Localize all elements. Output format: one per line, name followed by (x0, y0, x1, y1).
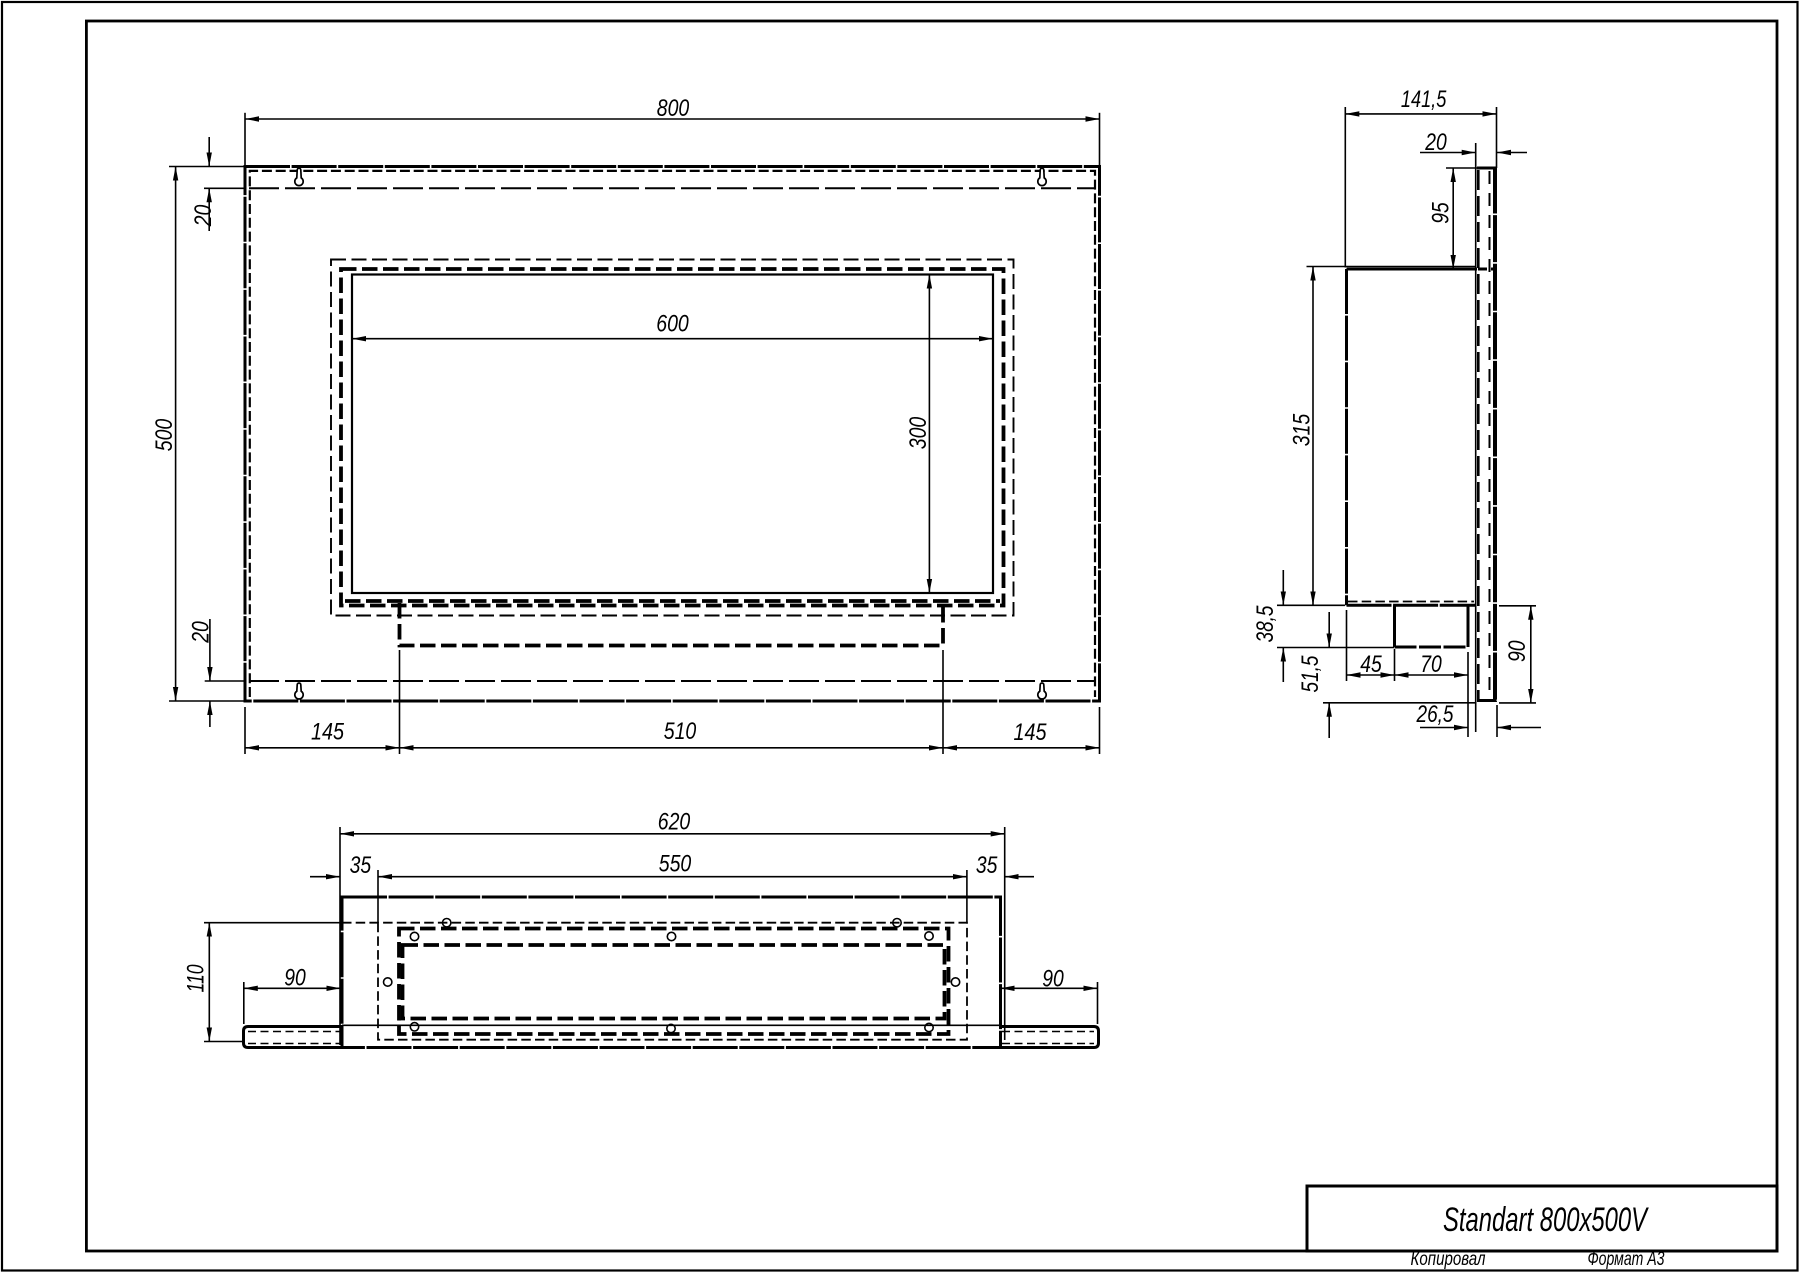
svg-text:45: 45 (1360, 651, 1382, 678)
svg-text:Формат А3: Формат А3 (1588, 1249, 1665, 1270)
svg-text:90: 90 (1504, 640, 1531, 662)
svg-text:26,5: 26,5 (1416, 701, 1454, 728)
svg-text:141,5: 141,5 (1401, 86, 1447, 113)
svg-text:20: 20 (188, 621, 215, 644)
svg-text:145: 145 (311, 719, 345, 746)
svg-text:110: 110 (183, 964, 210, 992)
svg-text:90: 90 (284, 965, 306, 992)
svg-text:35: 35 (976, 852, 998, 879)
svg-text:500: 500 (151, 418, 178, 451)
svg-text:38,5: 38,5 (1252, 605, 1279, 643)
svg-text:145: 145 (1014, 719, 1048, 746)
svg-text:315: 315 (1289, 413, 1316, 446)
svg-text:510: 510 (664, 718, 697, 745)
svg-text:600: 600 (656, 311, 689, 338)
svg-text:620: 620 (658, 809, 691, 836)
svg-text:550: 550 (659, 851, 692, 878)
svg-text:70: 70 (1420, 651, 1442, 678)
svg-text:20: 20 (1424, 129, 1447, 156)
svg-text:Копировал: Копировал (1411, 1249, 1486, 1270)
svg-text:300: 300 (905, 416, 932, 449)
svg-text:90: 90 (1042, 965, 1064, 992)
svg-text:800: 800 (657, 95, 690, 122)
svg-text:51,5: 51,5 (1297, 655, 1324, 693)
svg-text:95: 95 (1428, 202, 1455, 224)
svg-text:20: 20 (190, 204, 217, 227)
svg-text:Standart 800x500V: Standart 800x500V (1443, 1201, 1649, 1239)
svg-text:35: 35 (350, 852, 372, 879)
